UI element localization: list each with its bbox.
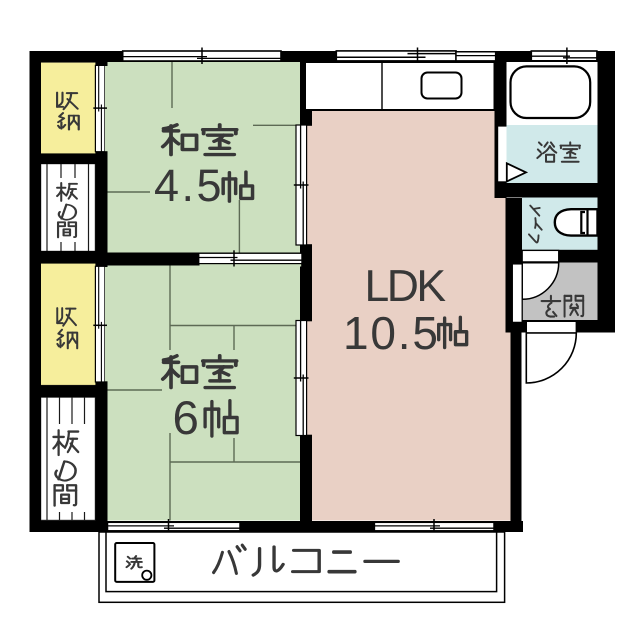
svg-text:10.5: 10.5 xyxy=(343,307,440,359)
svg-text:LDK: LDK xyxy=(365,262,447,311)
svg-text:4.5: 4.5 xyxy=(154,160,224,211)
svg-text:6: 6 xyxy=(173,392,199,445)
